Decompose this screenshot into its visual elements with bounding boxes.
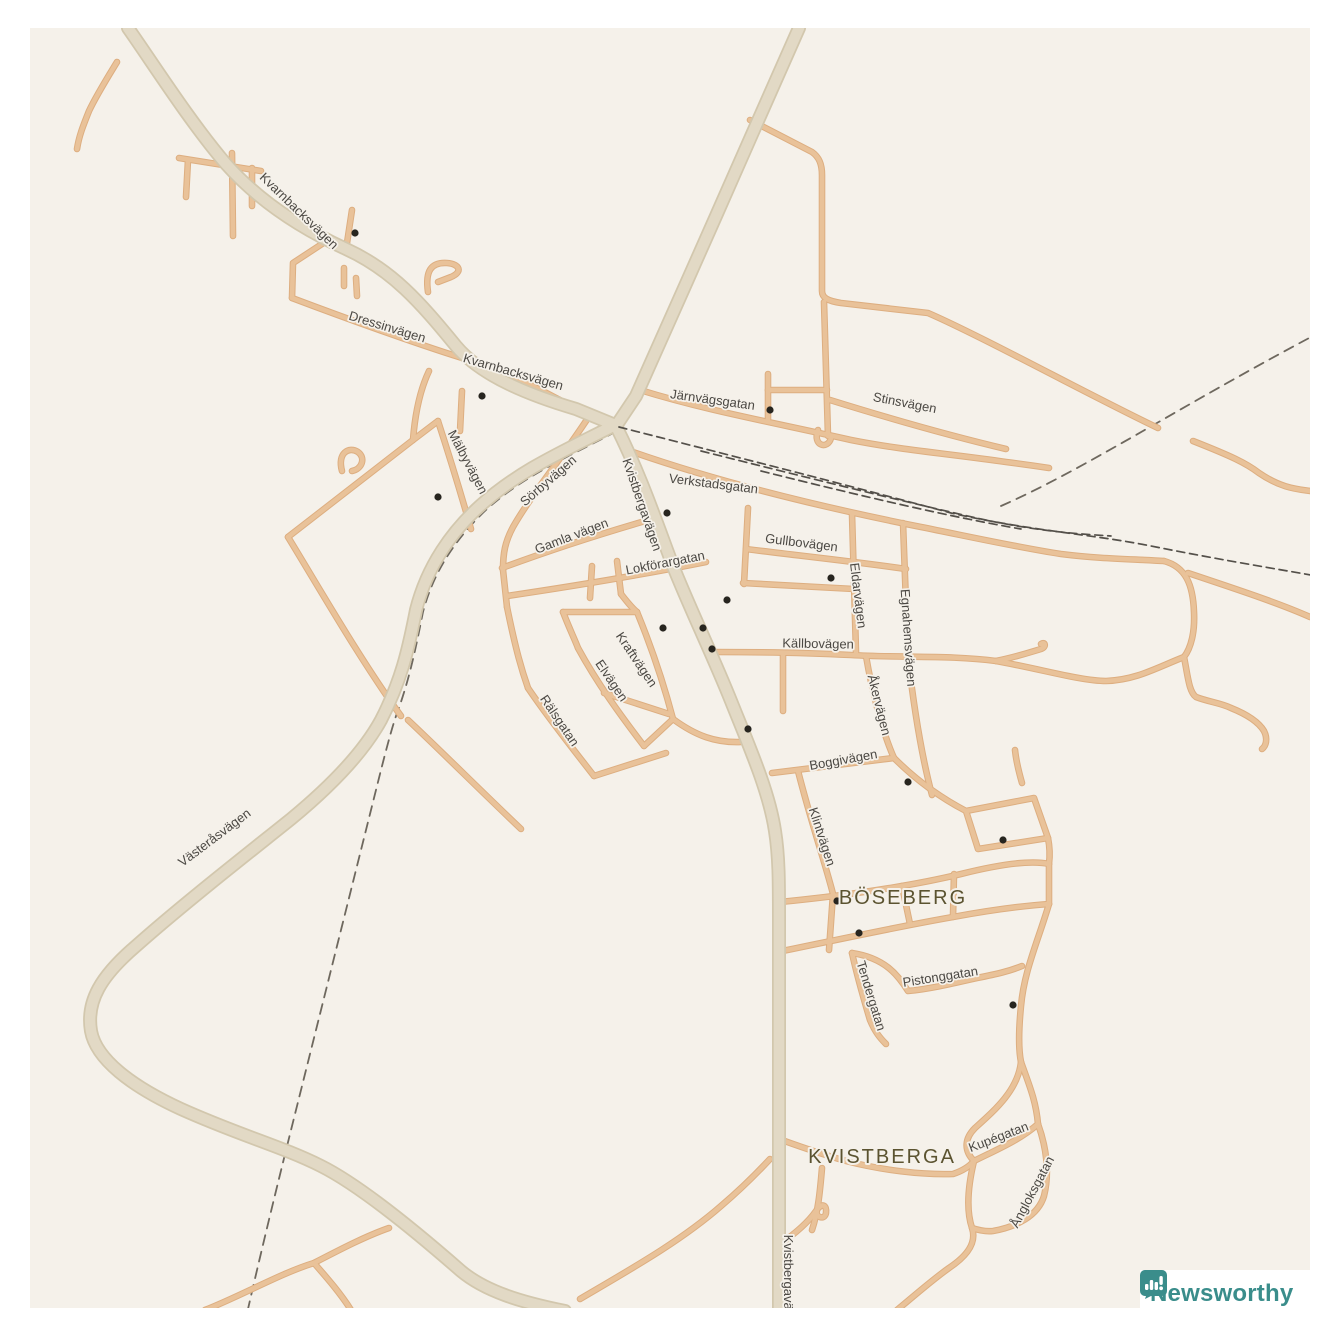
poi-dot [855,929,862,936]
logo-bar-1 [1145,1284,1148,1290]
poi-dot [659,624,666,631]
map-screenshot: KvarnbacksvägenDressinvägenKvarnbacksväg… [0,0,1340,1340]
poi-dot [663,509,670,516]
poi-dot [744,725,751,732]
street-label: Källbovägen [782,635,854,651]
minor-road [356,278,357,296]
logo-text: Newsworthy [1150,1280,1293,1308]
map-layers: KvarnbacksvägenDressinvägenKvarnbacksväg… [30,28,1311,1331]
poi-dot [708,645,715,652]
minor-road [590,566,592,598]
logo-exclaim-stem [1159,1276,1162,1285]
poi-dot [1009,1001,1016,1008]
map-canvas: KvarnbacksvägenDressinvägenKvarnbacksväg… [0,0,1340,1340]
minor-road [1048,838,1050,864]
logo-bar-3 [1155,1282,1158,1290]
minor-road [460,391,462,431]
poi-dot [827,574,834,581]
logo-bar-2 [1150,1280,1153,1290]
poi-dot [904,778,911,785]
map-background [30,28,1310,1308]
poi-dot [999,836,1006,843]
minor-road [186,160,188,197]
poi-dot [723,596,730,603]
poi-dot [351,229,358,236]
newsworthy-logo-icon [1140,1270,1167,1299]
poi-dot [478,392,485,399]
poi-dot [699,624,706,631]
poi-dot [434,493,441,500]
place-label: BÖSEBERG [839,887,967,909]
street-label: Kvistbergavägen [781,1235,796,1332]
logo-exclaim-dot [1159,1286,1163,1290]
logo-bubble-shape [1140,1270,1167,1299]
newsworthy-logo: Newsworthy [1140,1270,1340,1318]
place-label: KVISTBERGA [808,1146,956,1168]
poi-dot [766,406,773,413]
